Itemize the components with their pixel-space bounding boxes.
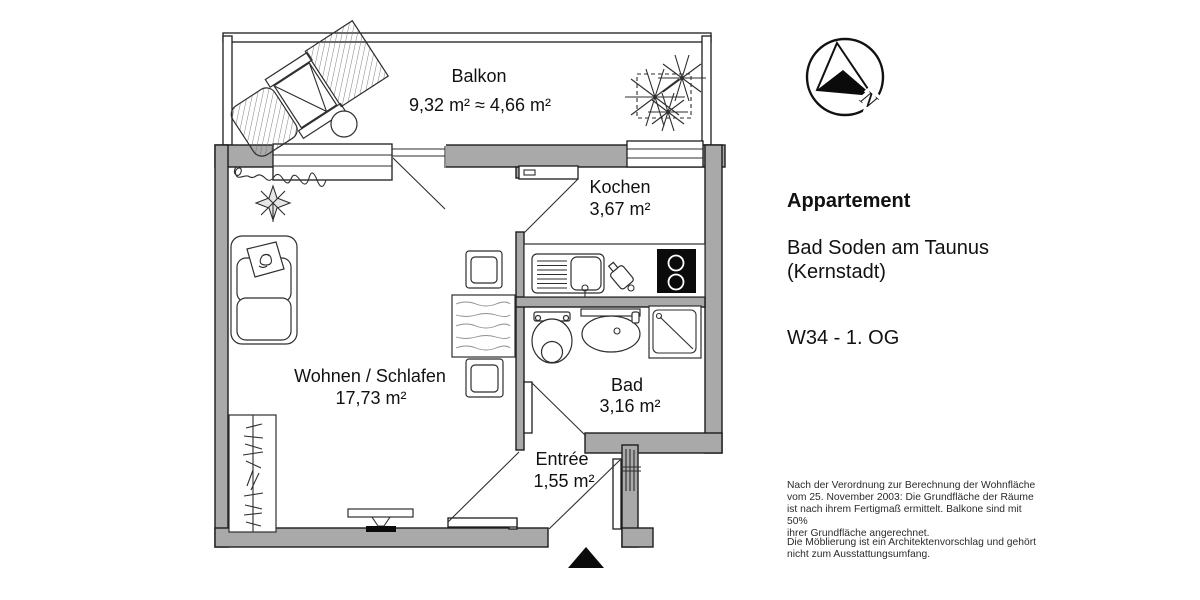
balcony-plant [625,55,706,131]
living-plant [256,186,290,222]
label-wohnen-area: 17,73 m² [335,388,406,408]
label-balkon-area: 9,32 m² ≈ 4,66 m² [409,95,551,115]
dining-table [452,295,515,357]
kitchen-window [627,141,703,167]
label-bad-area: 3,16 m² [599,396,660,416]
label-kochen-area: 3,67 m² [589,199,650,219]
kitchen-sink [532,254,604,297]
plan-title: Appartement [787,190,1047,212]
kitchen-door [519,166,578,233]
floorplan-page: Balkon 9,32 m² ≈ 4,66 m² Kochen 3,67 m² … [0,0,1200,600]
label-balkon: Balkon [451,66,506,86]
toilet [532,312,572,363]
sofa [231,236,297,344]
plan-location-line1: Bad Soden am Taunus [787,236,1047,260]
plan-note-furniture: Die Möblierung ist ein Architektenvorsch… [787,537,1037,561]
bath-door [524,382,586,436]
label-kochen: Kochen [589,177,650,197]
chair-bottom [466,359,503,397]
plan-location: Bad Soden am Taunus (Kernstadt) [787,236,1047,284]
label-entree-area: 1,55 m² [533,471,594,491]
living-entree-door [448,452,519,529]
compass-icon: N [807,39,883,115]
wardrobe [229,415,276,532]
plan-unit: W34 - 1. OG [787,327,1047,349]
washbasin [581,309,640,352]
label-wohnen: Wohnen / Schlafen [294,366,446,386]
balcony-side-table [331,111,357,137]
cooktop [657,249,696,293]
label-entree: Entrée [535,449,588,469]
plan-note-regulation: Nach der Verordnung zur Berechnung der W… [787,480,1037,540]
label-bad: Bad [611,375,643,395]
entrance-arrow [568,547,604,568]
plan-location-line2: (Kernstadt) [787,260,1047,284]
entrance-door [549,459,621,529]
chair-top [466,251,502,288]
balcony-window-door [273,144,446,209]
shower [649,306,701,358]
